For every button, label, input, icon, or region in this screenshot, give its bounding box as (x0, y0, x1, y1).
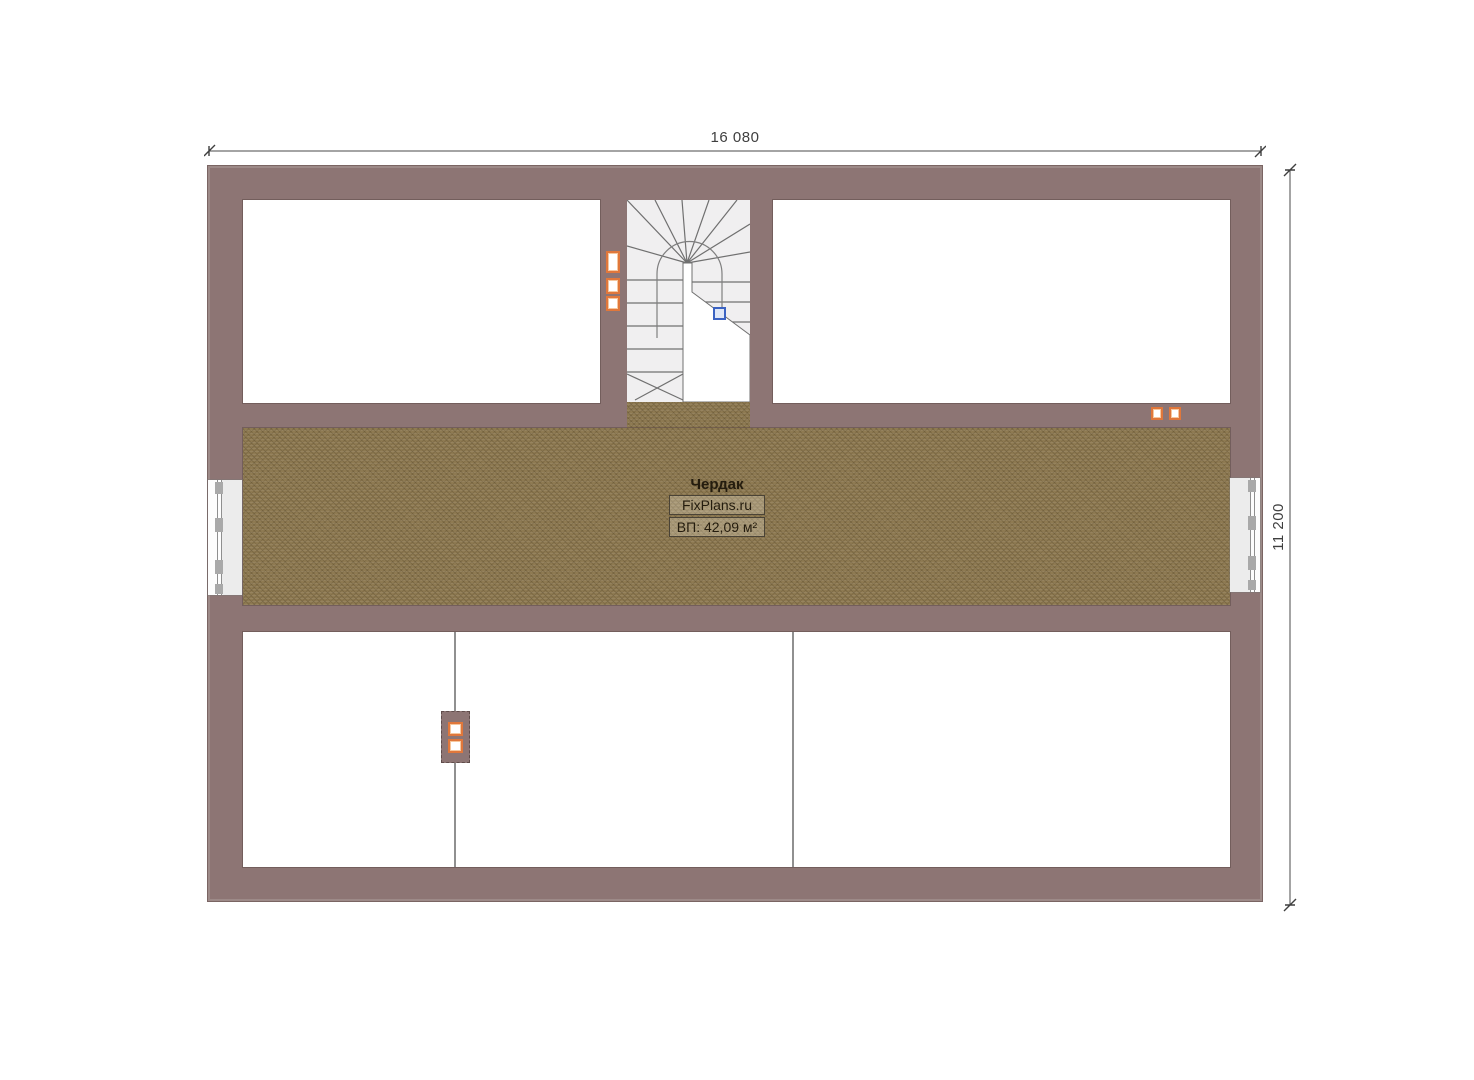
window-pane (1230, 478, 1250, 592)
section-marker-icon (713, 307, 726, 320)
window-mullion-tick (1248, 480, 1256, 492)
window-mullion-tick (215, 584, 223, 594)
window-mullion-tick (1248, 516, 1256, 530)
brand-label: FixPlans.ru (669, 495, 765, 515)
wall-flue-icon (606, 296, 620, 311)
dimension-height-label: 11 200 (1270, 487, 1290, 567)
room-top-right (773, 200, 1230, 403)
window-right (1230, 478, 1260, 592)
staircase (627, 200, 750, 402)
partition-line-right (792, 632, 794, 867)
window-mullion-tick (215, 560, 223, 574)
wall-flue-icon (1169, 407, 1181, 420)
dimension-width-label: 16 080 (685, 129, 785, 146)
room-name: Чердак (690, 476, 743, 493)
flue-opening-icon (448, 739, 463, 753)
wall-flue-icon (1151, 407, 1163, 420)
window-frame-line (1254, 478, 1255, 592)
window-frame-line (1250, 478, 1251, 592)
wall-flue-icon (606, 278, 620, 294)
room-label-block: Чердак FixPlans.ru ВП: 42,09 м² (650, 476, 784, 537)
attic-floor-stair-opening (627, 402, 750, 429)
room-top-left (243, 200, 600, 403)
window-frame-line (221, 480, 222, 595)
wall-flue-icon (606, 251, 620, 273)
flue-opening-icon (448, 722, 463, 736)
window-mullion-tick (215, 518, 223, 532)
floorplan-canvas: Чердак FixPlans.ru ВП: 42,09 м² 16 080 1… (0, 0, 1474, 1080)
window-frame-line (217, 480, 218, 595)
area-label: ВП: 42,09 м² (669, 517, 765, 537)
window-pane (222, 480, 242, 595)
window-mullion-tick (1248, 556, 1256, 570)
window-left (208, 480, 242, 595)
room-bottom (243, 632, 1230, 867)
chimney-block (441, 711, 470, 763)
window-mullion-tick (215, 482, 223, 494)
window-mullion-tick (1248, 580, 1256, 590)
